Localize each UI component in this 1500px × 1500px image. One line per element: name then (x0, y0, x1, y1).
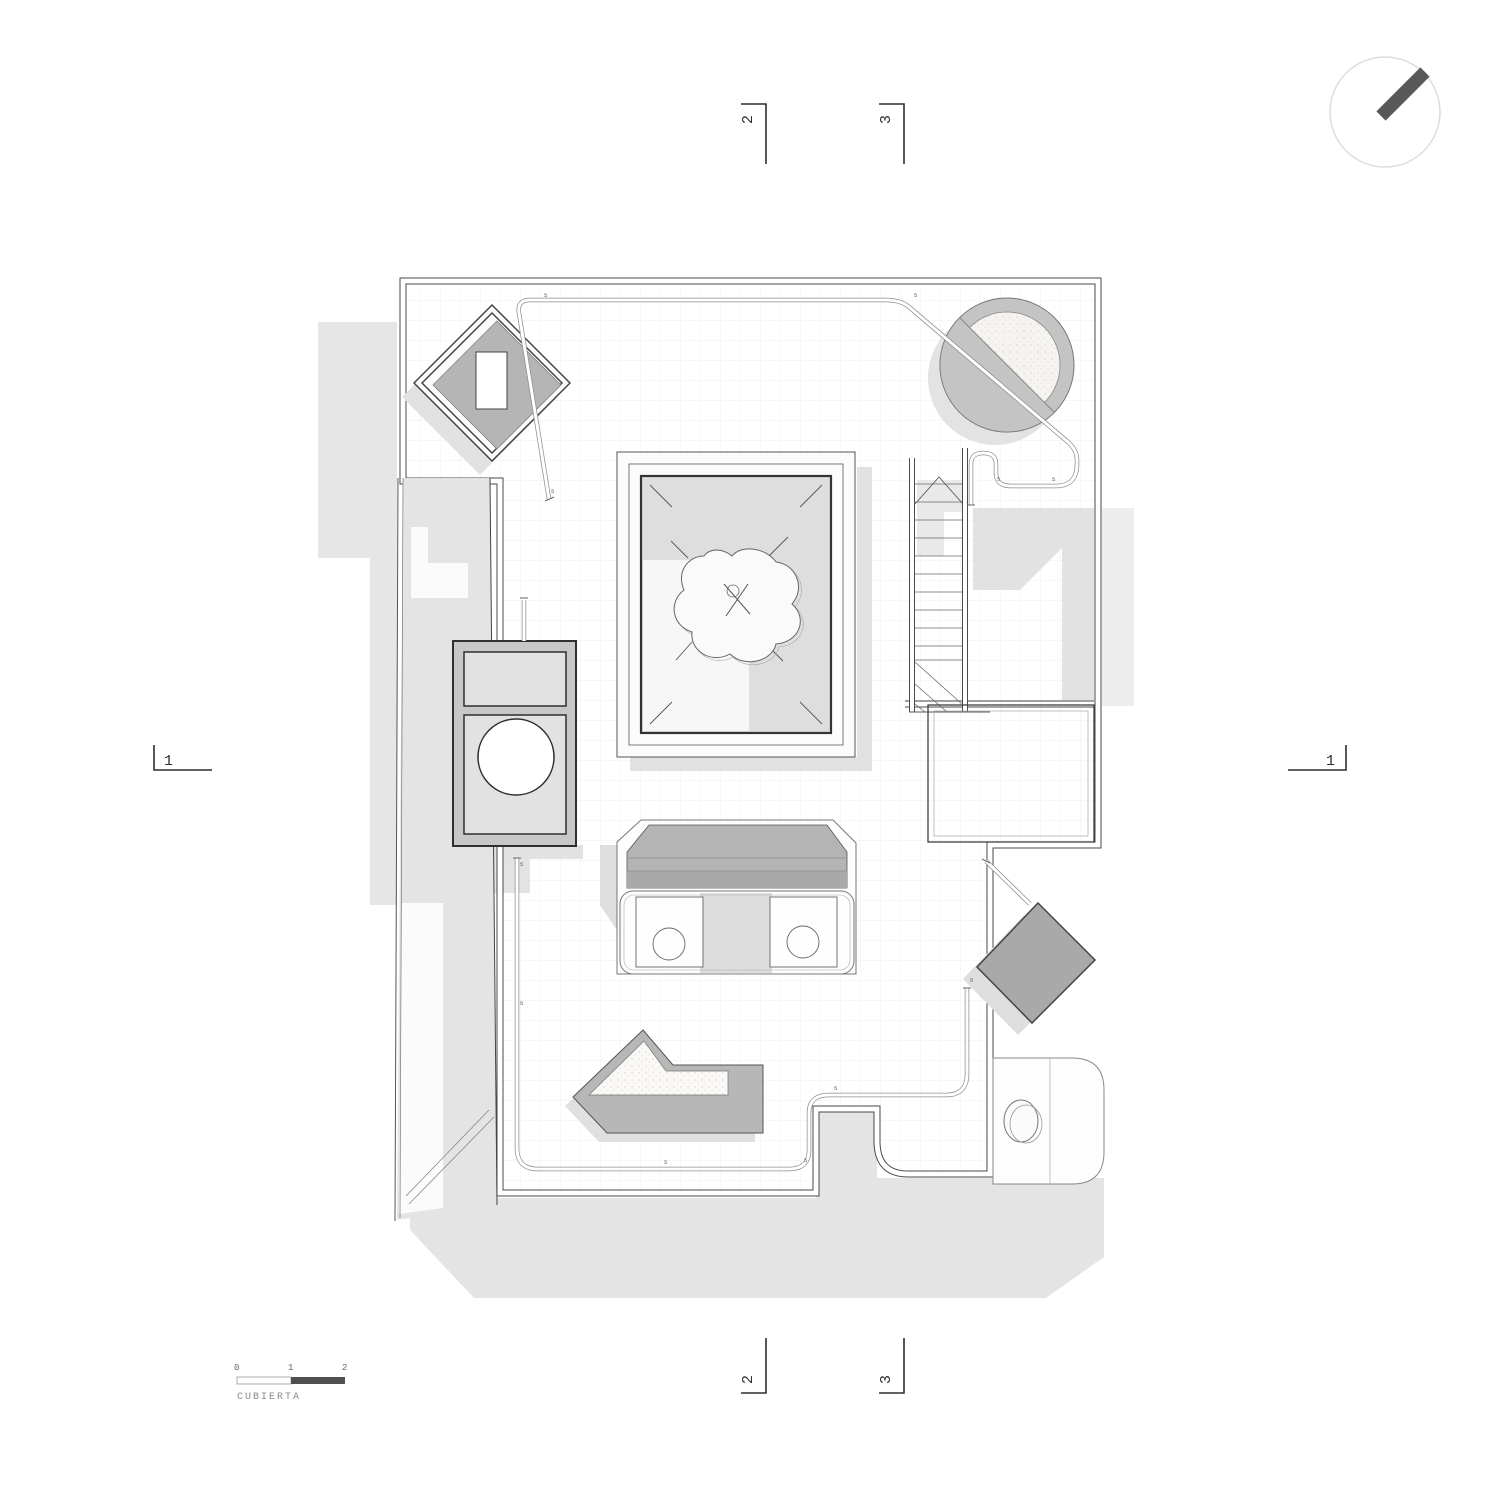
diamond-vent-box (476, 352, 507, 409)
roof-plan-sheet: 5 5 5 5 5 5 5 5 5 5 5 2 3 2 3 1 1 0 1 (0, 0, 1500, 1500)
scale-tick-1: 1 (288, 1363, 293, 1373)
scale-bar: 0 1 2 CUBIERTA (234, 1363, 347, 1403)
rail-tick-label: 5 (520, 1000, 523, 1007)
glass-panel-highlight2 (411, 563, 468, 598)
rail-tick-label: 5 (520, 861, 523, 868)
rail-tick-label: 5 (834, 1085, 837, 1092)
glass-panel-highlight1 (411, 527, 428, 563)
shadow-skylight-right (857, 467, 872, 767)
rail-tick-label: 5 (997, 476, 1000, 483)
north-indicator (1330, 57, 1440, 167)
chimney-top-bay (464, 652, 566, 706)
rail-tick-label: 5 (914, 292, 917, 299)
shadow-stair-top (917, 480, 962, 512)
section-number: 3 (878, 1375, 895, 1384)
sofa-backrest-band (627, 871, 847, 888)
glass-roof-panel (395, 478, 497, 1221)
shadow-skylight-bottom (630, 757, 872, 771)
roof-plan-drawing: 5 5 5 5 5 5 5 5 5 5 5 2 3 2 3 1 1 0 1 (0, 0, 1500, 1500)
rail-tick-label: 5 (664, 1159, 667, 1166)
sofa-right-table-circle (787, 926, 819, 958)
central-skylight (617, 452, 855, 757)
scale-segment-dark (291, 1377, 345, 1384)
section-number: 3 (878, 115, 895, 124)
shadow-right-band (1102, 508, 1134, 706)
scale-segment-light (237, 1377, 291, 1384)
section-number: 1 (164, 753, 173, 770)
rail-tick-label: 5 (551, 488, 554, 495)
section-number: 2 (740, 1375, 757, 1384)
section-number: 1 (1326, 753, 1335, 770)
shadow-stair-top2 (917, 512, 944, 556)
sofa-left-table-circle (653, 928, 685, 960)
section-marker-top-3-line (879, 104, 904, 164)
sofa (617, 820, 856, 974)
shadow-left-upper (318, 322, 397, 558)
section-marker-right-1-line (1288, 745, 1346, 770)
rail-tick-label: 5 (970, 977, 973, 984)
chimney-flue-opening (478, 719, 554, 795)
scale-tick-2: 2 (342, 1363, 347, 1373)
rail-tick-label: 5 (544, 292, 547, 299)
section-marker-left-1-line (154, 745, 212, 770)
shadow-left-strip (370, 558, 397, 905)
scale-tick-0: 0 (234, 1363, 239, 1373)
section-marker-top-2-line (741, 104, 766, 164)
exterior-unit (993, 1058, 1104, 1184)
section-number: 2 (740, 115, 757, 124)
chimney-unit (453, 641, 576, 846)
plan-title: CUBIERTA (237, 1392, 301, 1403)
rail-tick-label: 5 (804, 1157, 807, 1164)
rail-tick-label: 5 (1052, 476, 1055, 483)
sofa-middle-shadow (700, 893, 772, 973)
glass-panel-highlight3 (399, 903, 443, 1214)
